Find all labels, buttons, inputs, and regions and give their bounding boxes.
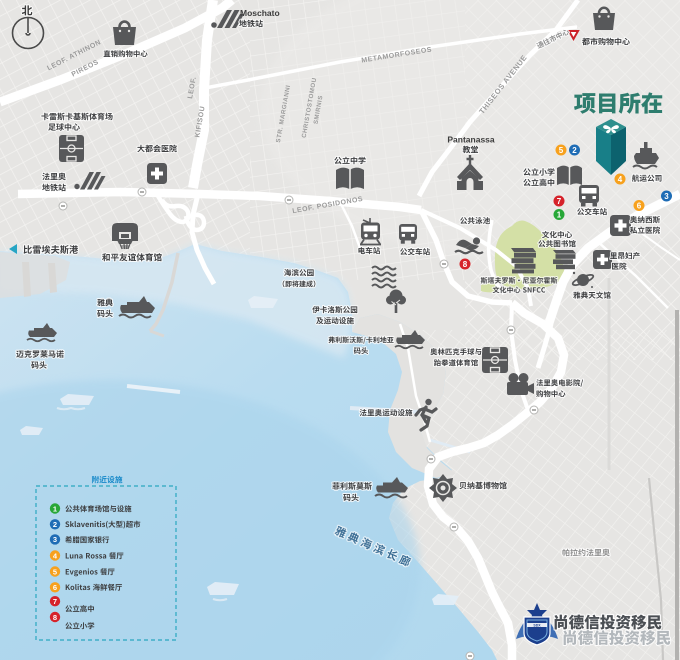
svg-text:5: 5 — [559, 146, 564, 155]
svg-text:Pantanassa: Pantanassa — [447, 135, 495, 145]
svg-text:1: 1 — [557, 211, 562, 220]
svg-text:3: 3 — [664, 192, 669, 201]
svg-text:2: 2 — [572, 146, 577, 155]
svg-text:6: 6 — [53, 583, 57, 592]
svg-text:1: 1 — [53, 504, 57, 513]
svg-text:8: 8 — [53, 613, 57, 622]
svg-text:7: 7 — [53, 597, 57, 606]
svg-text:SDX: SDX — [533, 624, 541, 628]
svg-text:3: 3 — [53, 535, 57, 544]
svg-text:6: 6 — [637, 202, 642, 211]
svg-text:2: 2 — [53, 520, 57, 529]
svg-text:7: 7 — [557, 197, 562, 206]
svg-text:8: 8 — [463, 260, 468, 269]
svg-text:Moschato: Moschato — [240, 8, 280, 18]
svg-text:4: 4 — [618, 175, 623, 184]
svg-text:5: 5 — [53, 567, 57, 576]
